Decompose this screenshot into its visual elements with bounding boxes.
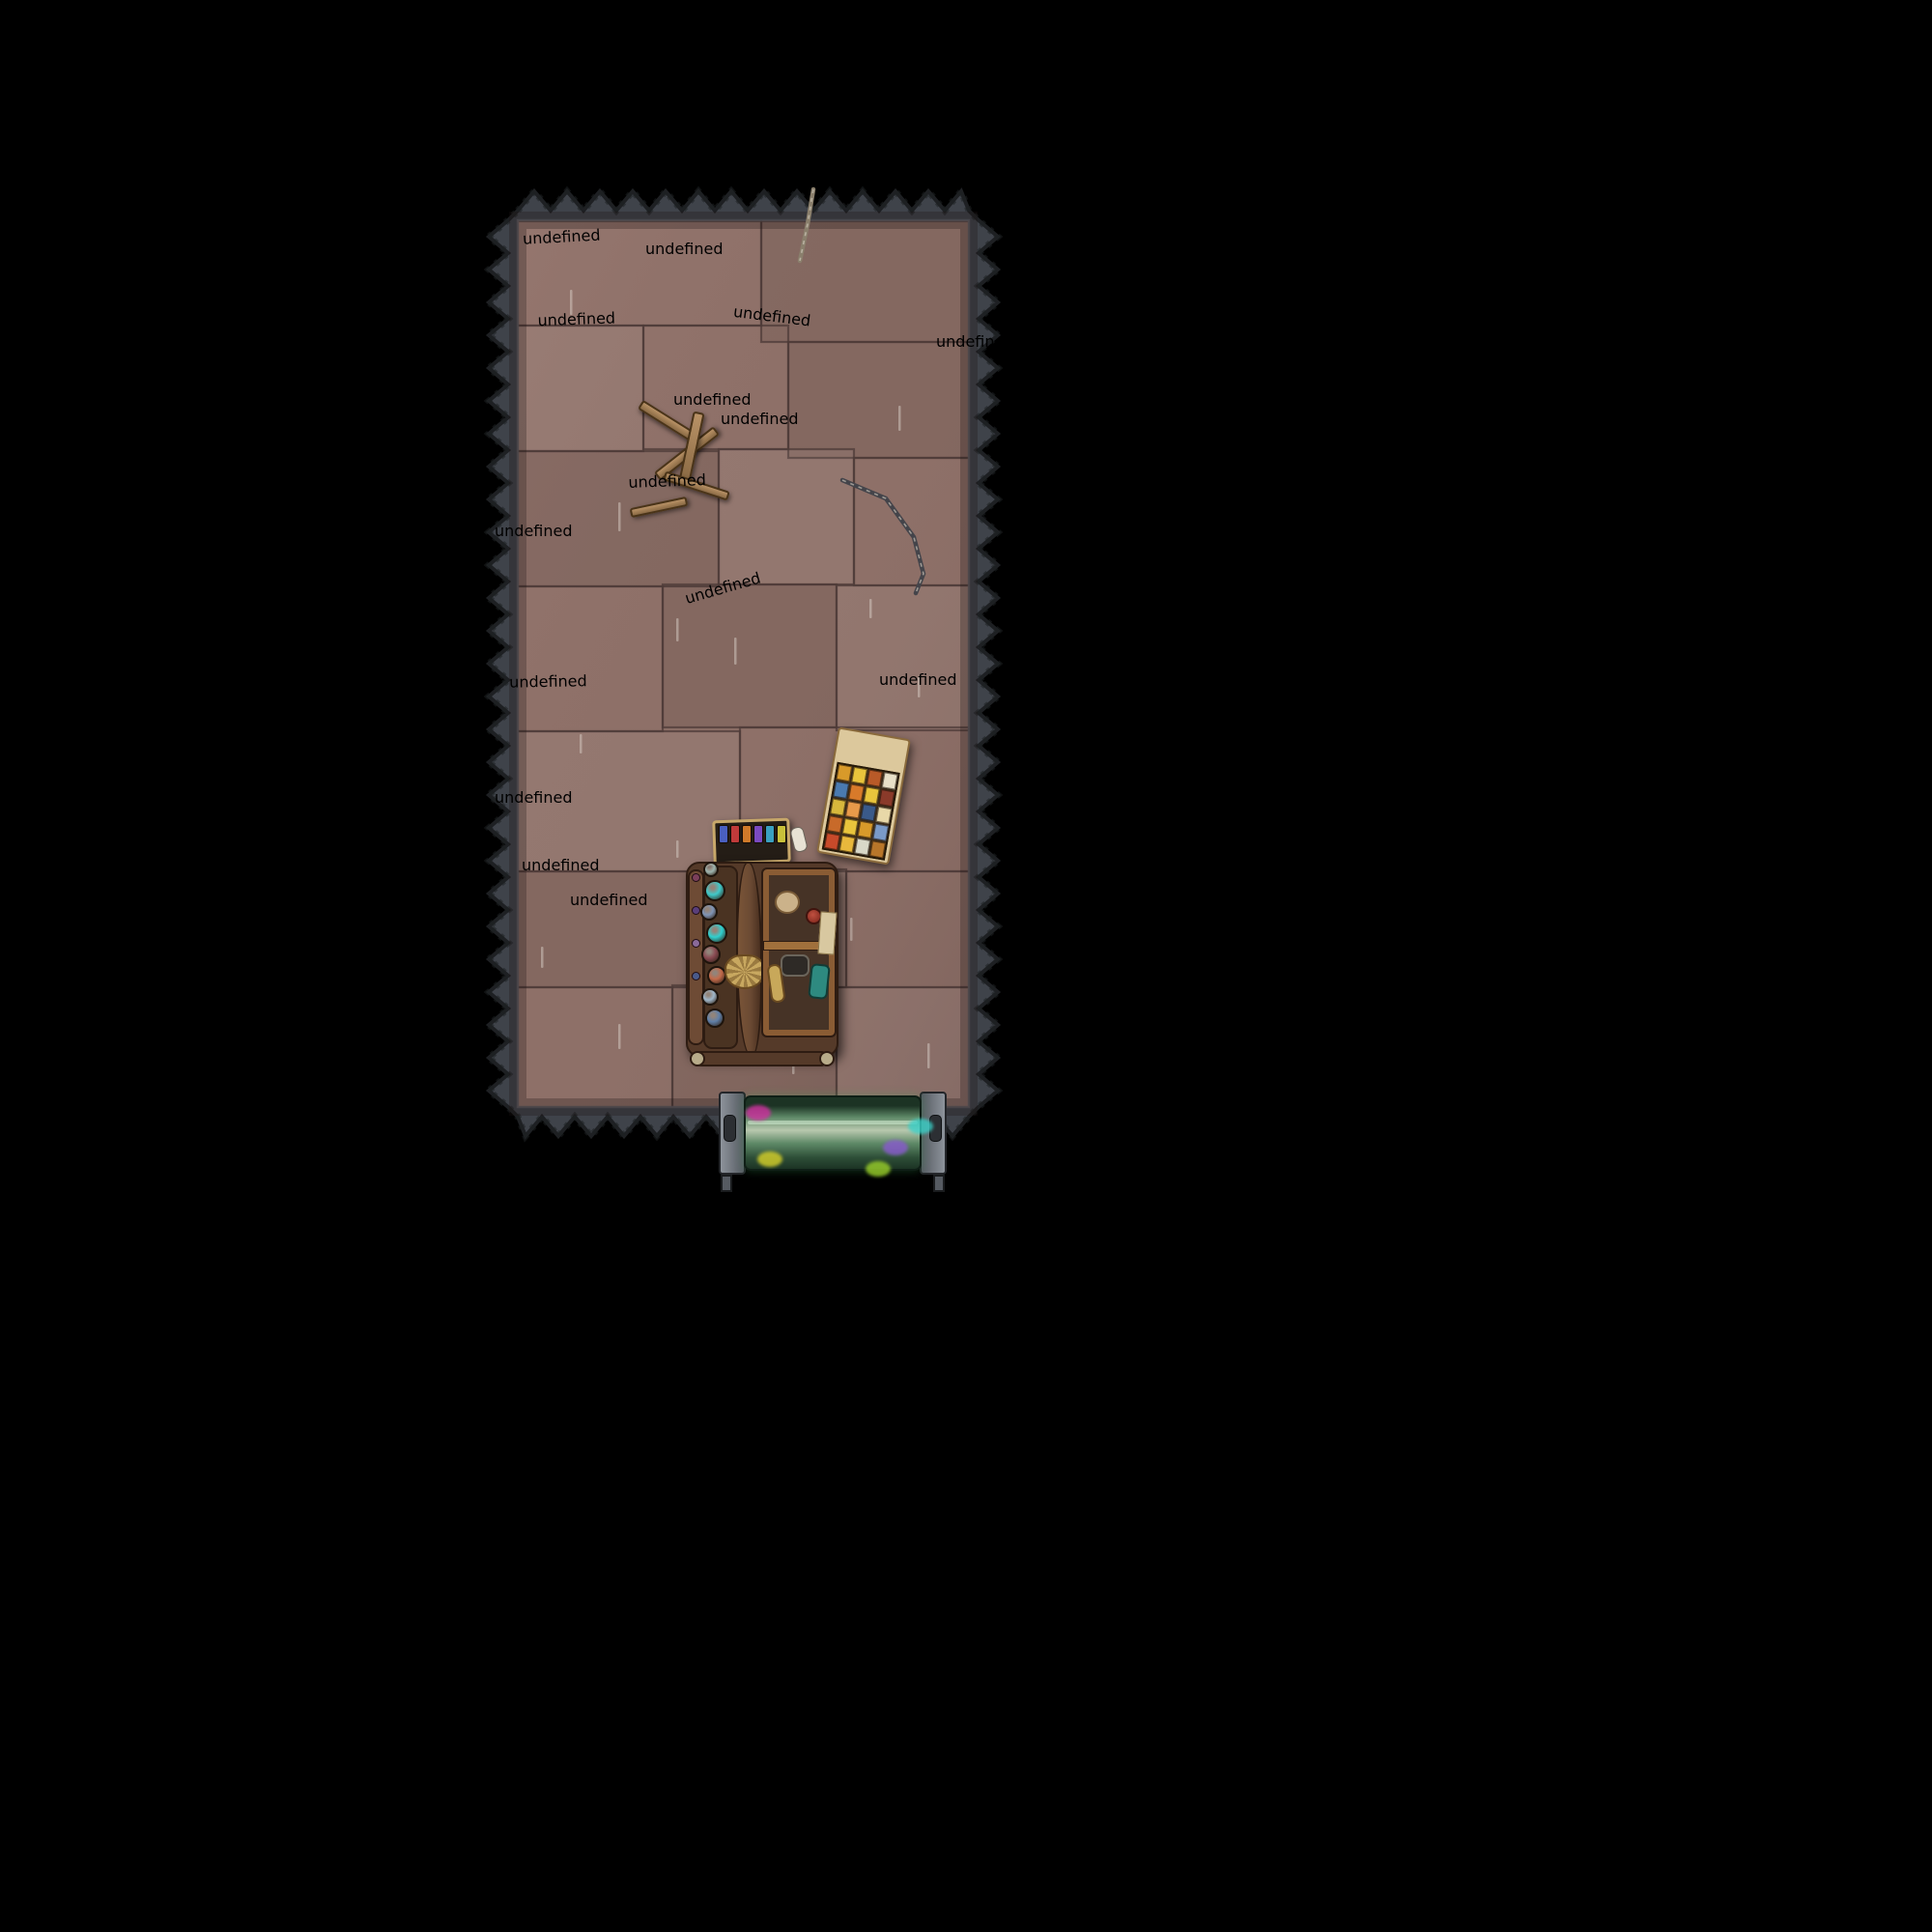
workbench: undefined [509,668,801,781]
display-orb [705,1009,724,1028]
candy-packet [777,825,786,843]
wall-canister-left-upper: undefined [495,522,543,678]
candy-packet [765,825,775,843]
glass-cell [848,784,865,802]
glass-cell [830,798,846,815]
yellow-generator: undefined [721,410,842,585]
glass-cell [845,801,862,818]
tow-chain [838,475,931,597]
glass-cell [882,772,898,789]
paint-splotch [866,1161,891,1177]
glass-cell [864,786,880,804]
rope-svg [838,475,931,597]
glass-cell [855,838,871,856]
glass-cell [879,789,895,807]
glass-cell [869,840,886,858]
glass-shine [748,1121,918,1124]
cap-foot [933,1175,945,1192]
battle-map-scene: undefinedundefinedundefinedundefinedunde… [0,0,1932,1932]
rail-knob [692,939,700,948]
glass-cell [833,781,849,799]
display-orb [707,966,726,985]
tan-pouch [775,891,800,914]
glass-cell [851,767,867,784]
glass-cell [867,770,883,787]
gold-shell [724,954,765,989]
wall-canister-left-lower: undefined [495,788,543,935]
display-orb [706,923,727,944]
rail-knob [692,873,700,882]
cabinet-bumper [694,1051,829,1066]
display-orb [701,988,719,1006]
display-orb [703,862,719,877]
candy-packet [742,825,752,843]
paint-splotch [746,1105,771,1121]
bumper-knob [819,1051,835,1066]
floor-canister-bottom [719,1097,947,1186]
bumper-knob [690,1051,705,1066]
glass-cell [876,807,893,824]
rope-lashed-crate: undefined [628,469,734,583]
cap-foot [721,1175,732,1192]
cap-slot [724,1115,736,1142]
teal-cloth [808,963,831,1000]
display-orb [700,903,718,921]
display-orb [701,945,721,964]
rail-knob [692,906,700,915]
paper-roll [789,826,809,854]
glass-cell [837,764,853,781]
furniture-layer: undefinedundefinedundefinedundefinedunde… [0,0,1932,1932]
paint-splotch [757,1151,782,1167]
curio-cabinet [686,819,838,1072]
candy-packet [753,825,763,843]
rail-knob [692,972,700,980]
candy-packet [719,825,728,843]
glass-cell [858,821,874,838]
glass-cell [842,818,859,836]
dark-tray [781,954,810,977]
paper-sheet [817,911,837,954]
paint-splotch [908,1119,933,1134]
glass-cell [861,804,877,821]
spilled-papers: undefined [570,891,643,1061]
glass-cell [872,824,889,841]
paint-splotch [883,1140,908,1155]
glass-cell [839,836,856,853]
display-orb [704,880,725,901]
wall-canister-right: undefined [936,332,988,485]
candy-packet [730,825,740,843]
